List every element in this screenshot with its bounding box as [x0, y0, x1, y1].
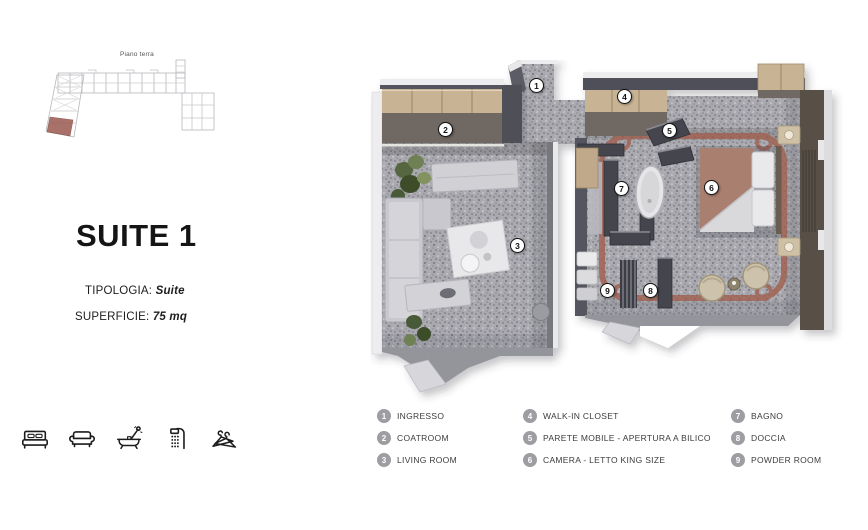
legend-number-badge: 6: [523, 453, 537, 467]
legend-column-1: 1 INGRESSO 2 COATROOM 3 LIVING ROOM: [377, 409, 457, 467]
site-key-plan: Piano terra: [38, 46, 238, 150]
legend-number-badge: 5: [523, 431, 537, 445]
superficie-value: 75 mq: [153, 311, 187, 323]
page-title: SUITE 1: [76, 218, 197, 254]
legend-number-badge: 9: [731, 453, 745, 467]
hangers-icon: [208, 423, 238, 453]
site-plan-title: Piano terra: [106, 51, 168, 58]
legend-number-badge: 3: [377, 453, 391, 467]
tipologia-label: TIPOLOGIA:: [85, 285, 156, 297]
legend-label: PARETE MOBILE - APERTURA A BILICO: [543, 433, 711, 443]
legend-number-badge: 7: [731, 409, 745, 423]
legend-item: 3 LIVING ROOM: [377, 453, 457, 467]
amenity-icons-row: [20, 423, 238, 453]
plan-marker-1: 1: [529, 78, 544, 93]
legend-label: DOCCIA: [751, 433, 786, 443]
plan-marker-4: 4: [617, 89, 632, 104]
tipologia-line: TIPOLOGIA: Suite: [85, 285, 185, 297]
suite-presentation-page: { "site_plan": { "label": "Piano terra" …: [0, 0, 868, 530]
daybed-bench: [431, 160, 518, 192]
legend-label: CAMERA - LETTO KING SIZE: [543, 455, 665, 465]
superficie-line: SUPERFICIE: 75 mq: [75, 311, 187, 323]
superficie-label: SUPERFICIE:: [75, 311, 153, 323]
bedroom-area: [575, 64, 832, 348]
legend-item: 5 PARETE MOBILE - APERTURA A BILICO: [523, 431, 711, 445]
legend-item: 9 POWDER ROOM: [731, 453, 821, 467]
bed-icon: [20, 423, 50, 453]
legend-label: LIVING ROOM: [397, 455, 457, 465]
plan-marker-7: 7: [614, 181, 629, 196]
legend-label: BAGNO: [751, 411, 783, 421]
shower-icon: [161, 423, 191, 453]
plan-marker-9: 9: [600, 283, 615, 298]
floor-plan: 1 2 3 4 5 6 7 8 9: [370, 60, 845, 405]
coffee-tables: [447, 220, 509, 277]
legend-column-3: 7 BAGNO 8 DOCCIA 9 POWDER ROOM: [731, 409, 821, 467]
legend-number-badge: 1: [377, 409, 391, 423]
site-plan-suite-highlight: [47, 117, 73, 136]
legend-label: WALK-IN CLOSET: [543, 411, 619, 421]
site-plan-drawing: [38, 46, 238, 150]
plan-marker-6: 6: [704, 180, 719, 195]
plan-marker-5: 5: [662, 123, 677, 138]
shower-screen: [620, 260, 637, 308]
legend-column-2: 4 WALK-IN CLOSET 5 PARETE MOBILE - APERT…: [523, 409, 711, 467]
bathtub-icon: [114, 423, 144, 453]
legend-item: 1 INGRESSO: [377, 409, 457, 423]
plan-marker-3: 3: [510, 238, 525, 253]
legend-number-badge: 2: [377, 431, 391, 445]
legend-label: POWDER ROOM: [751, 455, 821, 465]
coatroom-rail: [382, 144, 504, 147]
plan-marker-2: 2: [438, 122, 453, 137]
legend-label: INGRESSO: [397, 411, 444, 421]
legend-number-badge: 4: [523, 409, 537, 423]
legend-item: 8 DOCCIA: [731, 431, 821, 445]
legend-label: COATROOM: [397, 433, 449, 443]
legend-item: 7 BAGNO: [731, 409, 821, 423]
legend-item: 2 COATROOM: [377, 431, 457, 445]
plan-marker-8: 8: [643, 283, 658, 298]
floor-plan-rendering: [370, 60, 845, 405]
legend-item: 4 WALK-IN CLOSET: [523, 409, 711, 423]
legend-item: 6 CAMERA - LETTO KING SIZE: [523, 453, 711, 467]
sofa-icon: [67, 423, 97, 453]
tipologia-value: Suite: [156, 285, 185, 297]
legend-number-badge: 8: [731, 431, 745, 445]
side-pouf: [533, 304, 550, 321]
